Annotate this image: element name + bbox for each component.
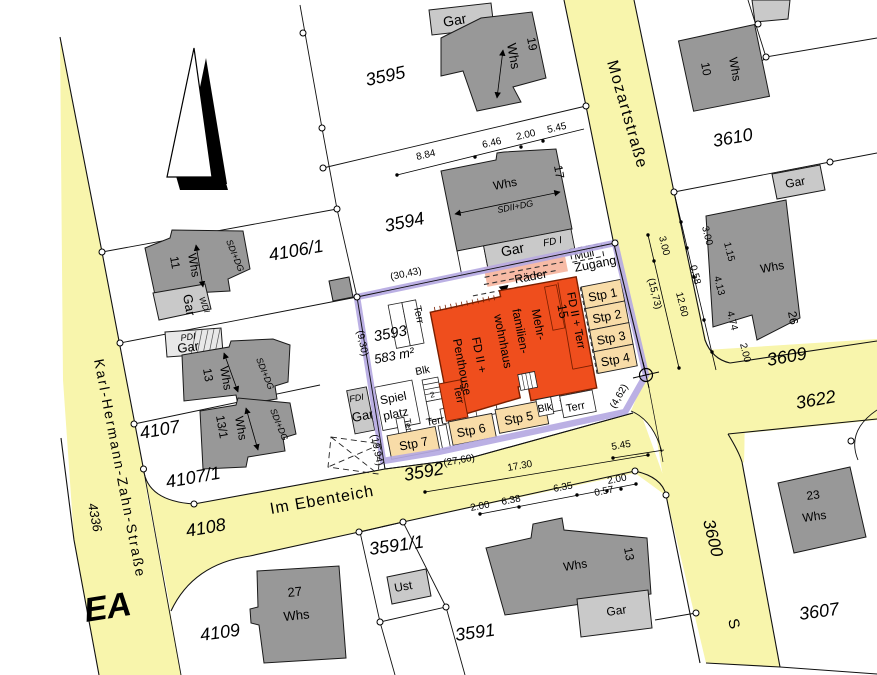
svg-text:13: 13 [621, 546, 637, 562]
svg-text:EA: EA [81, 585, 134, 630]
svg-text:23: 23 [805, 487, 820, 503]
svg-text:26: 26 [785, 310, 801, 326]
svg-text:10: 10 [698, 61, 714, 77]
svg-text:Gar: Gar [605, 602, 627, 619]
svg-text:Whs: Whs [283, 606, 311, 624]
svg-text:13: 13 [200, 367, 216, 383]
svg-text:Gar: Gar [176, 338, 200, 356]
svg-text:17: 17 [551, 164, 567, 180]
svg-text:15: 15 [554, 303, 571, 320]
svg-text:19: 19 [524, 36, 540, 52]
svg-text:27: 27 [287, 584, 303, 600]
